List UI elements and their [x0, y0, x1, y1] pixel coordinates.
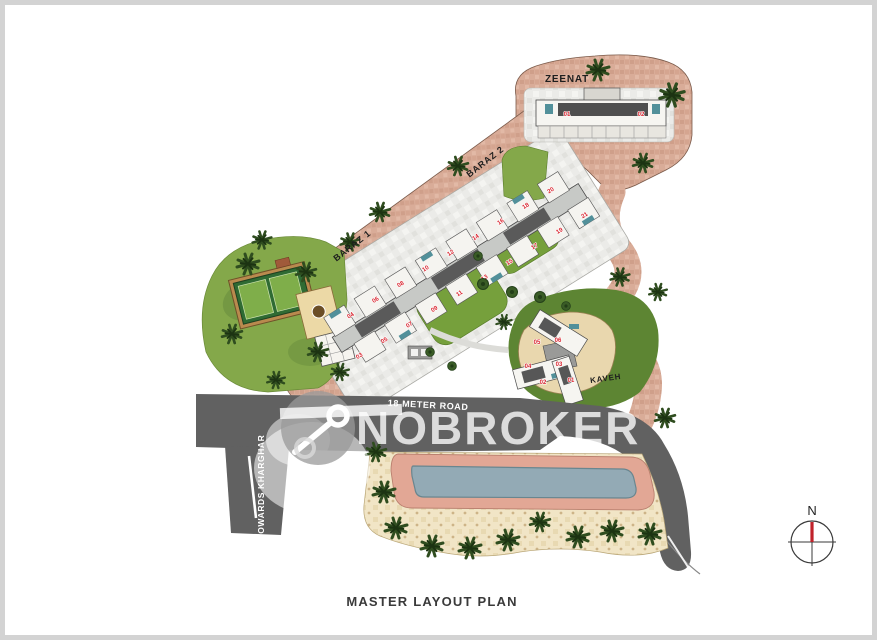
- north-label: N: [807, 503, 816, 518]
- unit-number: 05: [534, 340, 541, 346]
- compass: N: [788, 503, 836, 566]
- unit-number: 02: [638, 112, 645, 118]
- master-layout-plan: 0102: [0, 0, 877, 640]
- zeenat-label: ZEENAT: [545, 74, 589, 85]
- unit-number: 04: [525, 364, 532, 370]
- unit-number: 01: [568, 378, 575, 384]
- unit-number: 02: [540, 380, 547, 386]
- unit-number: 01: [564, 112, 571, 118]
- unit-number: 06: [555, 338, 562, 344]
- page-title: MASTER LAYOUT PLAN: [346, 594, 517, 609]
- watermark-brand: NOBROKER: [356, 402, 640, 454]
- unit-number: 03: [556, 362, 563, 368]
- nobroker-logo-icon: [281, 391, 355, 465]
- water-body: [412, 466, 636, 498]
- site-plan-svg: 0102: [5, 5, 872, 635]
